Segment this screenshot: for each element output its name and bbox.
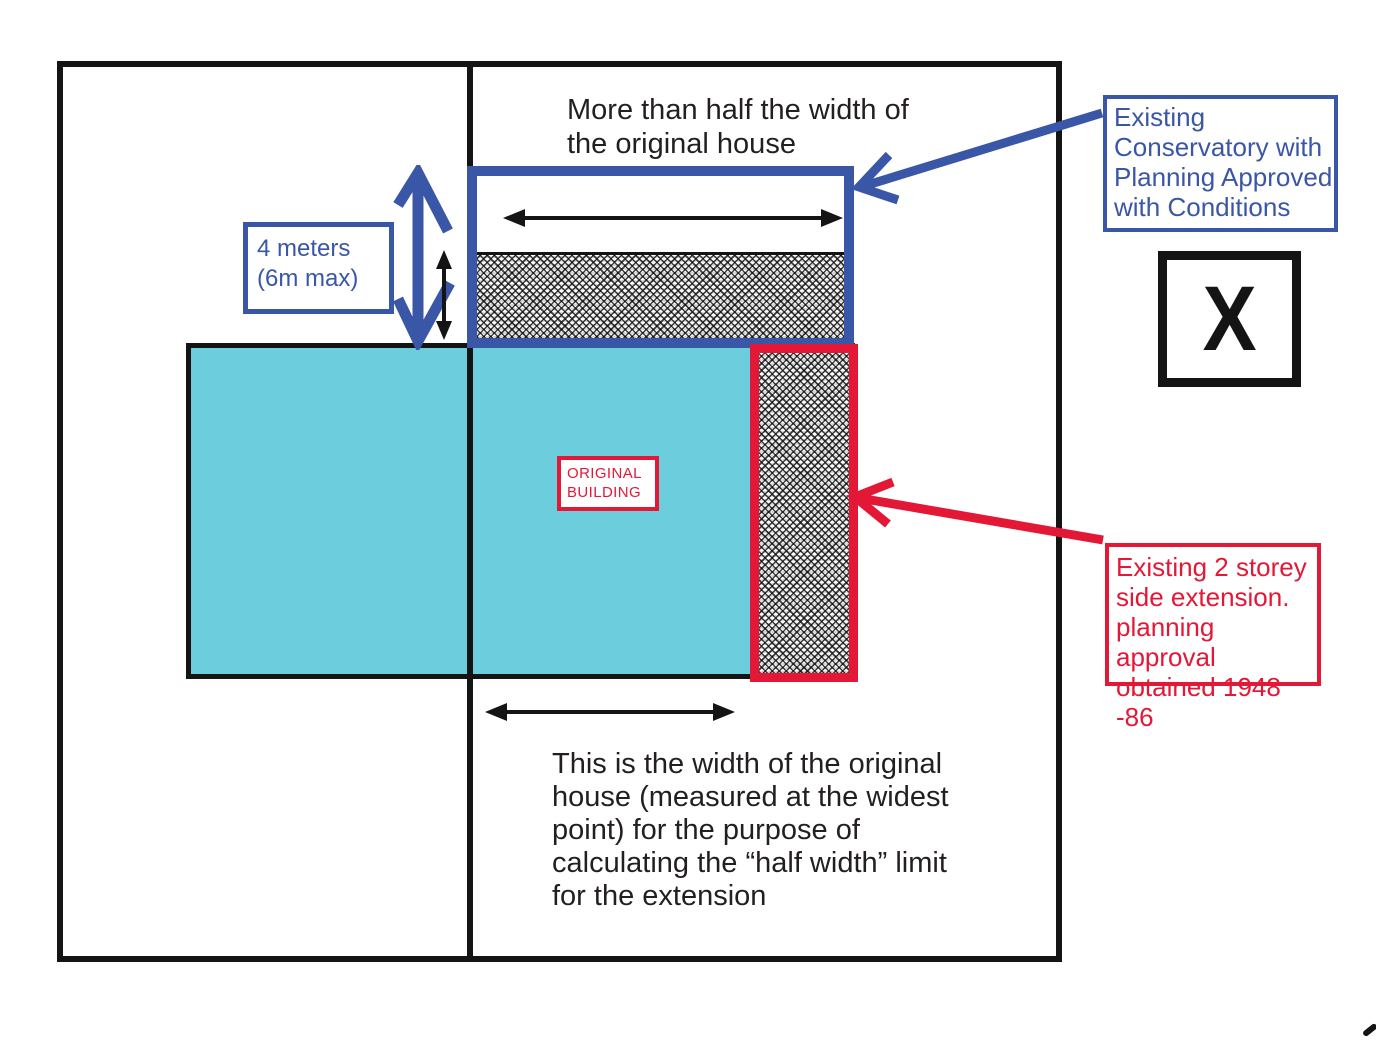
side-extension-hatched-box [750,344,858,682]
page-corner-mark [1362,1023,1376,1038]
planning-diagram: More than half the width of the original… [0,0,1376,1044]
bottom-caption: This is the width of the original house … [552,748,949,913]
x-marker-box: X [1158,251,1301,387]
extension-callout: Existing 2 storey side extension. planni… [1105,543,1321,686]
house-width-arrow-icon [485,699,735,725]
extension-pointer-arrow-icon [845,470,1109,548]
conservatory-hatched-area [477,252,844,338]
conservatory-depth-arrow-icon [433,248,455,342]
conservatory-width-arrow-icon [503,206,843,230]
four-meters-label: 4 meters (6m max) [243,222,394,314]
conservatory-pointer-arrow-icon [850,104,1106,208]
original-building-label: ORIGINAL BUILDING [557,456,659,511]
x-marker: X [1202,273,1256,365]
conservatory-callout: Existing Conservatory with Planning Appr… [1103,95,1338,232]
conservatory-outline-box [467,166,854,348]
